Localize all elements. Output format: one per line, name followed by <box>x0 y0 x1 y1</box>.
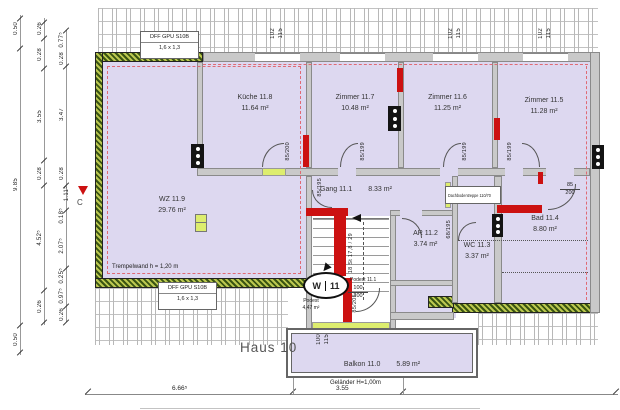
wz-ceiling-opening-icon <box>195 214 207 232</box>
dim-label: 0.28 <box>37 167 43 180</box>
door-size-z116: 85/199 <box>463 142 469 161</box>
dim-label: 0.77⁵ <box>59 32 65 48</box>
dim-label: 3.55 <box>37 110 43 123</box>
sill-dim-b: 115 <box>456 28 462 38</box>
window-kueche <box>255 53 300 62</box>
stair-direction-arrow-icon <box>352 214 361 222</box>
sill-dim-a: 102 <box>270 28 276 39</box>
dim-label: 0.28 <box>37 48 43 61</box>
room-label-z116: Zimmer 11.611.25 m² <box>405 92 490 114</box>
door-size-bad: 85200 <box>560 182 580 197</box>
door-size-entry: 100200 <box>348 285 368 300</box>
room-label-gang: Gang 11.18.33 m² <box>320 186 392 193</box>
house-label: Haus 10 <box>240 340 297 355</box>
door-gap-ar <box>400 210 422 216</box>
dim-extension-line <box>293 378 294 394</box>
dff-roof-window-bottom: DFF GPU S10B 1,6 x 1,3 <box>158 282 217 310</box>
dim-label: 0.50 <box>13 22 19 35</box>
headroom-line-2 <box>502 272 588 273</box>
exterior-wall-left <box>95 52 103 288</box>
exterior-wall-bad-bottom <box>452 303 600 313</box>
red-wall-kueche-z117 <box>303 135 309 167</box>
dim-label: 0.50 <box>13 333 19 346</box>
room-label-kueche: Küche 11.811.64 m² <box>215 92 295 114</box>
dim-chain-line <box>20 15 21 355</box>
balcony-sill-dim-a: 100 <box>316 334 322 345</box>
dim-chain-line <box>44 18 45 325</box>
stair-count-label: 18 St 17,8 / 29 <box>349 233 355 273</box>
sill-dim-a: 102 <box>538 28 544 39</box>
room-label-balkon: Balkon 11.05.89 m² <box>344 361 420 368</box>
dim-label: 2.07⁵ <box>59 238 65 254</box>
section-arrow-icon <box>78 186 88 195</box>
sill-dim-b: 115 <box>546 28 552 38</box>
window-z116 <box>433 53 478 62</box>
apartment-marker: W 11 <box>303 272 349 299</box>
dim-chain-line <box>66 30 67 322</box>
trempelwand-label: Trempelwand h = 1,20 m <box>112 264 178 272</box>
red-wall-bad-nook <box>497 205 542 213</box>
red-wall-stair-top <box>306 208 348 216</box>
sill-dim-b: 115 <box>278 28 284 38</box>
dim-label-bottom-1: 6.66⁵ <box>172 385 187 392</box>
room-label-wc: WC 11.33.37 m² <box>453 240 501 262</box>
room-label-podest-upper: Podest 11.1 <box>350 277 376 284</box>
door-gap-z116 <box>440 168 458 176</box>
red-wall-bad-jamb <box>538 172 543 184</box>
door-gap-bad <box>546 168 574 176</box>
chimney-shaft-icon <box>492 214 503 237</box>
window-z117 <box>340 53 385 62</box>
dim-line-bottom <box>85 394 618 395</box>
dim-label: 9.85 <box>13 178 19 191</box>
room-label-z115: Zimmer 11.511.28 m² <box>500 95 588 117</box>
dff-roof-window-top: DFF GPU S10B 1,6 x 1,3 <box>140 31 199 59</box>
door-size-z117: 85/199 <box>361 142 367 161</box>
exterior-wall-entry-corner <box>428 296 454 308</box>
dim-label: 4.52⁵ <box>37 230 43 246</box>
floor-plan: 18 St 17,8 / 29 <box>0 0 620 410</box>
sill-dim-a: 102 <box>448 28 454 39</box>
dim-label: 0.97⁵ <box>59 288 65 304</box>
red-wall-stair-spine <box>334 216 346 276</box>
dim-label: 0.26 <box>59 308 65 321</box>
room-label-bad: Bad 11.48.80 m² <box>510 213 580 235</box>
section-letter: C <box>77 198 83 207</box>
dim-label: 3.47 <box>59 108 65 121</box>
chimney-shaft-icon <box>191 144 204 168</box>
door-size-z115: 85/199 <box>508 142 514 161</box>
door-size-kueche: 85/200 <box>286 142 292 161</box>
door-gap-z115 <box>505 168 523 176</box>
wall-right <box>590 52 600 313</box>
balcony: Balkon 11.05.89 m² <box>286 328 478 378</box>
trempelwand-line-top <box>203 64 588 65</box>
attic-ladder-label: Dachbodentreppe 110/70 <box>445 186 501 204</box>
room-label-wz: WZ 11.929.76 m² <box>132 194 212 216</box>
wall-entry-bottom <box>390 312 454 320</box>
dim-label-bottom-2: 3.55 <box>336 385 349 392</box>
room-label-z117: Zimmer 11.710.48 m² <box>315 92 395 114</box>
red-wall-z116-z115 <box>494 118 500 140</box>
room-label-podest: Podest 4,47 m² <box>294 298 328 311</box>
balcony-sill-dim-b: 115 <box>324 334 330 344</box>
dim-label: 0.26 <box>37 300 43 313</box>
chimney-shaft-icon <box>592 145 604 169</box>
dim-line-bottom-partial <box>140 408 480 409</box>
room-label-ar: AR 11.23.74 m² <box>398 228 453 250</box>
red-wall-z117-z116 <box>397 68 403 92</box>
wall-z116-z115 <box>492 62 498 168</box>
wall-ar-bottom <box>390 280 458 286</box>
dim-extension-line <box>403 378 404 394</box>
dim-label: 1.11⁵ <box>64 186 70 201</box>
dim-label: 0.28 <box>59 52 65 65</box>
roof-rafters-bottom-right <box>478 313 598 345</box>
door-gap-z117 <box>338 168 356 176</box>
window-z115 <box>523 53 568 62</box>
dim-label: 0.28 <box>59 167 65 180</box>
